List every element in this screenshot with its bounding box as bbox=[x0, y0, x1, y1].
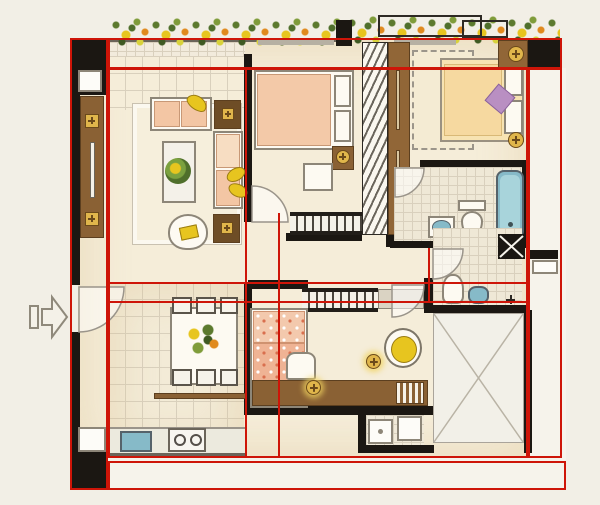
red-line-bathroom2-divider bbox=[428, 248, 430, 303]
red-annotation-overlay bbox=[0, 0, 600, 505]
red-box-top-balcony-strip bbox=[108, 38, 562, 69]
floorplan-screenshot bbox=[0, 0, 600, 505]
red-box-corridor-strip bbox=[108, 282, 528, 303]
red-line-living-divider bbox=[245, 68, 247, 458]
red-box-bottom-strip bbox=[108, 461, 566, 490]
red-line-bedroom3-divider bbox=[278, 213, 280, 458]
red-box-main-interior bbox=[108, 68, 528, 458]
red-box-left-wall-strip bbox=[70, 38, 108, 490]
red-box-right-side-strip bbox=[528, 68, 562, 458]
